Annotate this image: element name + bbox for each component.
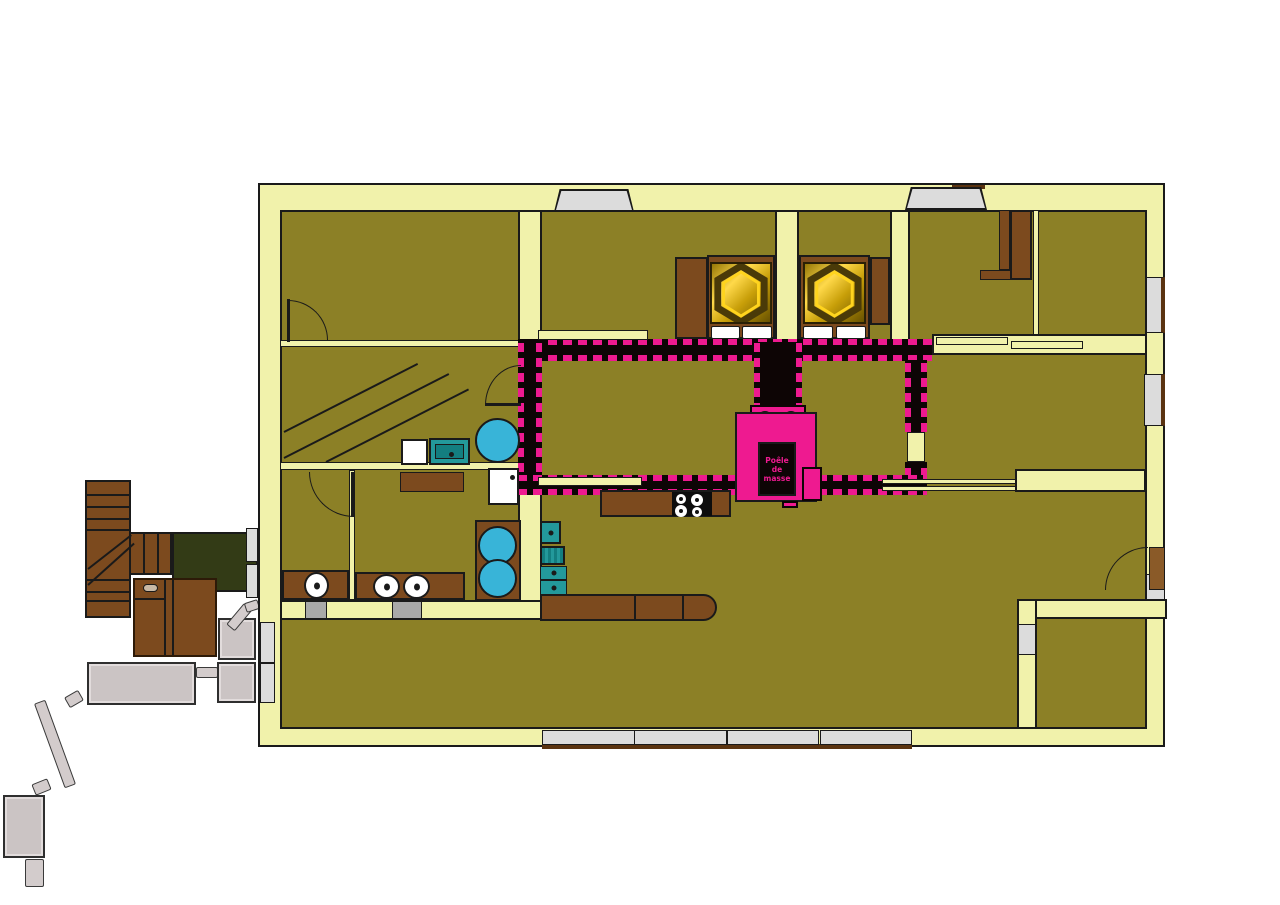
wall-halfwall-right	[1015, 469, 1146, 492]
window-glass	[556, 191, 632, 210]
dish-rack	[540, 546, 565, 565]
wall-bedroom-right	[890, 210, 910, 342]
heated-duct-left	[518, 339, 542, 487]
exterior-window-sill	[246, 564, 258, 598]
bathroom-sink	[429, 438, 470, 465]
washbasin	[403, 574, 430, 599]
pillow	[803, 326, 833, 339]
window-top-2	[905, 187, 987, 210]
bed-side-cabinet	[675, 257, 708, 339]
cooktop-burner	[691, 494, 703, 506]
wall-horizontal-left	[280, 340, 520, 347]
window-right-2	[1144, 374, 1165, 426]
cabinet-seam	[164, 580, 166, 655]
stair-tread	[87, 518, 129, 520]
window-glass	[907, 189, 985, 208]
boiler-box-long	[87, 662, 196, 705]
cooktop-burner	[675, 505, 687, 517]
window-top-1	[554, 189, 634, 212]
heated-duct-top	[518, 339, 932, 361]
flue-pipe-elbow	[31, 778, 51, 795]
stove-base-tab	[782, 501, 798, 508]
building: Poêle de masse	[258, 183, 1165, 747]
window-mullion	[261, 662, 274, 664]
drawer	[540, 566, 567, 580]
wood-cabinet	[133, 578, 217, 657]
wall-bottomright-vertical	[1017, 599, 1037, 729]
sink-drain	[449, 452, 454, 457]
cabinet-handle	[143, 584, 158, 592]
stove-firebox: Poêle de masse	[758, 442, 796, 496]
exterior-stairs-flight	[85, 480, 131, 608]
bed-duvet-hex-pattern	[803, 262, 866, 324]
sliding-door-rail	[1011, 341, 1083, 349]
door-leaf	[485, 403, 521, 406]
wall-horizontal-mid	[280, 462, 520, 470]
door-leaf	[351, 472, 354, 517]
wall-bedroom-partition	[775, 210, 799, 342]
shower-drain	[510, 475, 515, 480]
sliding-door-rail	[882, 479, 1016, 484]
stair-tread	[87, 529, 129, 531]
stair-tread	[87, 494, 129, 496]
washbasin	[373, 574, 400, 599]
wardrobe	[1010, 210, 1032, 280]
wardrobe-panel	[999, 210, 1010, 270]
window-bottom-4	[820, 730, 912, 745]
exterior-bench	[85, 600, 131, 618]
wall-ne-partition	[1033, 210, 1039, 340]
stove-chimney	[754, 342, 802, 412]
island-seam	[634, 596, 636, 619]
exterior-window-sill	[246, 528, 258, 562]
boiler-connector	[196, 667, 218, 678]
floor-plan-canvas: Poêle de masse	[0, 0, 1280, 905]
window-left-living	[260, 622, 275, 703]
cabinet-seam	[135, 598, 164, 600]
stair-tread	[87, 506, 129, 508]
bed-duvet-hex-pattern	[710, 262, 772, 324]
stove-label-line2: de	[760, 465, 794, 474]
flue-pipe-elbow	[64, 690, 84, 708]
kitchen-island	[540, 594, 717, 621]
shower	[488, 468, 519, 505]
stair-tread	[87, 591, 129, 593]
wardrobe-foot	[980, 270, 1011, 280]
sliding-door-rail	[538, 477, 642, 486]
window-interior-br	[1018, 624, 1036, 655]
pillow	[742, 326, 772, 339]
heated-duct-right-upper	[905, 360, 927, 432]
boiler-foot	[25, 859, 44, 887]
kitchen-drawers	[540, 566, 567, 595]
bed-side-cabinet	[870, 257, 890, 325]
washing-machine	[401, 439, 428, 465]
doorway-threshold	[392, 601, 422, 619]
stair-tread	[143, 533, 145, 574]
window-bottom-1	[542, 730, 635, 745]
island-seam	[682, 596, 684, 619]
appliance-knob	[548, 530, 553, 535]
washbasin	[304, 572, 329, 599]
drawer	[540, 580, 567, 595]
stove-label-line1: Poêle	[760, 456, 794, 465]
stair-tread	[157, 533, 159, 574]
sliding-door-rail	[538, 330, 648, 340]
sliding-door-rail	[882, 486, 1016, 491]
flue-pipe-long	[34, 700, 76, 789]
duct-door	[907, 432, 925, 462]
window-bottom-2	[634, 730, 727, 745]
boiler-box-bottom	[3, 795, 45, 858]
kitchen-appliance-small	[540, 521, 561, 544]
pillow	[711, 326, 740, 339]
sliding-door-rail	[936, 337, 1008, 345]
cooktop-burner	[676, 494, 686, 504]
cooktop	[672, 492, 712, 516]
pillow	[836, 326, 866, 339]
window-right-1	[1146, 277, 1165, 333]
window-bottom-3	[727, 730, 819, 745]
entrance-door-leaf	[1149, 547, 1165, 590]
doorway-threshold	[305, 601, 327, 619]
cabinet-seam	[172, 580, 174, 655]
boiler-box-right	[217, 662, 256, 703]
stove-label-line3: masse	[760, 474, 794, 483]
heated-bench-stub	[802, 467, 822, 501]
wall-bottomright-horizontal	[1017, 599, 1167, 619]
exterior-stairs-winder	[129, 532, 172, 575]
bath-counter	[400, 472, 464, 492]
bathtub-round	[475, 418, 520, 463]
laundry-drum	[478, 559, 517, 598]
cooktop-burner	[692, 507, 702, 517]
